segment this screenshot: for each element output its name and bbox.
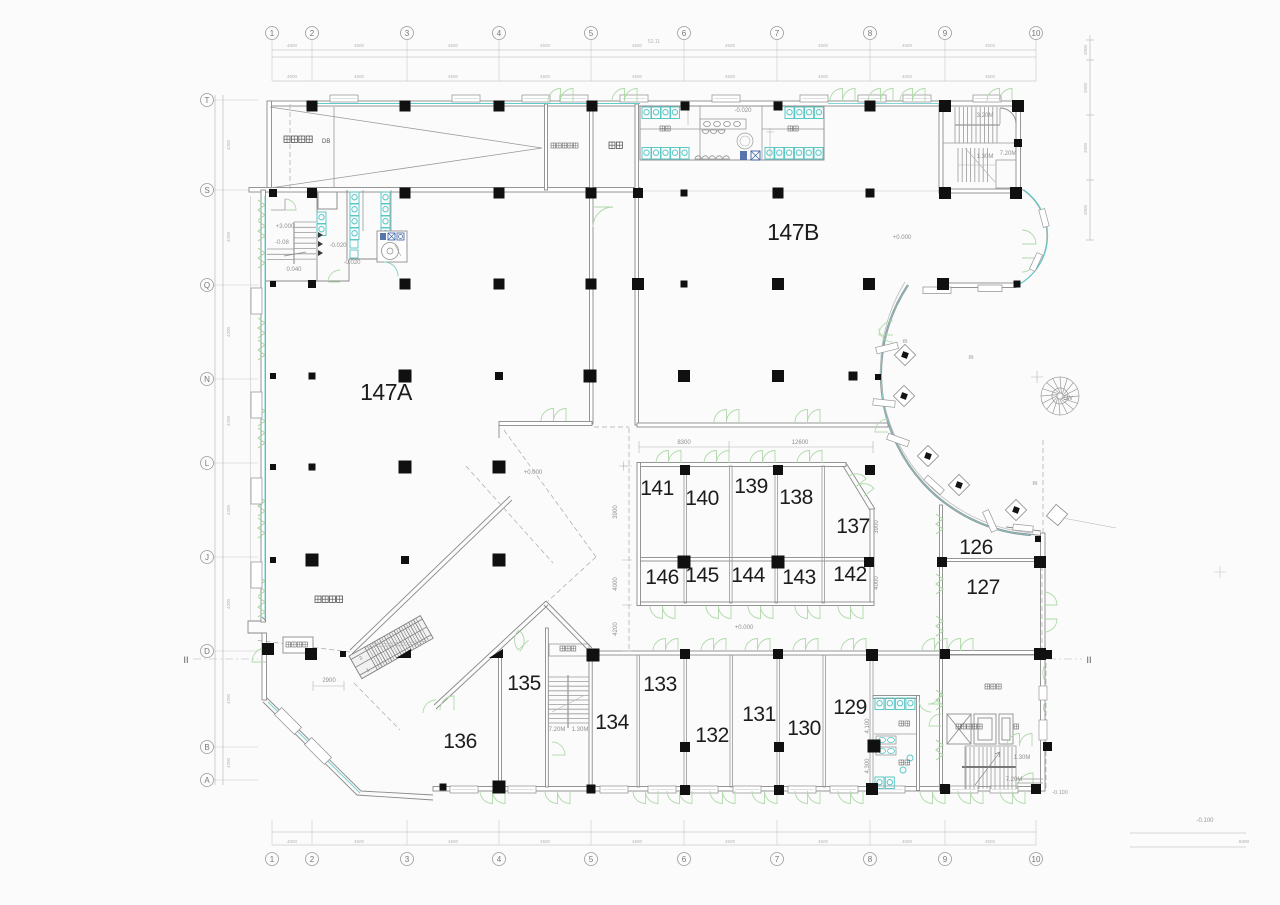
svg-text:12600: 12600: [792, 440, 809, 446]
svg-text:N: N: [204, 375, 210, 384]
svg-text:4200: 4200: [226, 504, 231, 515]
svg-text:3900: 3900: [1083, 44, 1088, 55]
svg-text:4500: 4500: [818, 43, 829, 48]
svg-text:+0.000: +0.000: [735, 625, 754, 631]
svg-text:143: 143: [782, 566, 816, 589]
svg-text:140: 140: [685, 487, 719, 510]
svg-text:147B: 147B: [767, 219, 819, 245]
svg-text:3.20M: 3.20M: [977, 113, 994, 119]
svg-text:4200: 4200: [226, 326, 231, 337]
svg-text:7.20M: 7.20M: [1006, 777, 1023, 783]
svg-text:4200: 4200: [226, 139, 231, 150]
svg-text:2: 2: [310, 855, 315, 864]
svg-text:146: 146: [645, 566, 679, 589]
svg-text:4200: 4200: [613, 622, 619, 636]
svg-text:-0.100: -0.100: [1196, 818, 1214, 824]
svg-text:4500: 4500: [448, 839, 459, 844]
svg-text:4500: 4500: [632, 43, 643, 48]
svg-text:4500: 4500: [985, 839, 996, 844]
svg-text:4500: 4500: [818, 74, 829, 79]
svg-text:4200: 4200: [226, 757, 231, 768]
svg-text:4200: 4200: [226, 693, 231, 704]
svg-text:4: 4: [497, 855, 502, 864]
svg-text:5W: 5W: [1064, 396, 1073, 402]
svg-text:4500: 4500: [902, 74, 913, 79]
svg-text:3: 3: [405, 29, 410, 38]
svg-text:+0.000: +0.000: [524, 470, 543, 476]
svg-text:4500: 4500: [725, 74, 736, 79]
svg-text:+0.000: +0.000: [893, 235, 912, 241]
svg-text:131: 131: [742, 703, 776, 726]
svg-text:138: 138: [779, 486, 813, 509]
svg-text:m: m: [969, 355, 974, 361]
svg-text:52.11: 52.11: [648, 39, 660, 45]
svg-text:4200: 4200: [226, 598, 231, 609]
svg-text:129: 129: [833, 696, 867, 719]
svg-text:10: 10: [1032, 855, 1041, 864]
svg-text:II: II: [1086, 655, 1091, 665]
svg-text:J: J: [205, 553, 209, 562]
svg-text:4000: 4000: [613, 577, 619, 591]
svg-text:6: 6: [682, 29, 687, 38]
svg-text:4500: 4500: [818, 839, 829, 844]
svg-text:4500: 4500: [354, 839, 365, 844]
svg-text:141: 141: [640, 477, 674, 500]
svg-text:4500: 4500: [287, 74, 298, 79]
svg-text:6: 6: [682, 855, 687, 864]
svg-text:-0.08: -0.08: [275, 240, 289, 246]
svg-text:4000: 4000: [874, 576, 880, 590]
svg-text:134: 134: [595, 711, 629, 734]
svg-text:4500: 4500: [902, 839, 913, 844]
svg-text:3900: 3900: [1083, 204, 1088, 215]
svg-text:4500: 4500: [287, 839, 298, 844]
svg-text:T: T: [205, 96, 210, 105]
svg-text:-0.020: -0.020: [343, 260, 361, 266]
svg-text:127: 127: [966, 576, 1000, 599]
svg-text:S: S: [204, 186, 209, 195]
svg-text:7: 7: [775, 29, 780, 38]
svg-text:2: 2: [310, 29, 315, 38]
svg-text:8300: 8300: [677, 440, 691, 446]
svg-text:9: 9: [943, 855, 948, 864]
svg-text:4.100: 4.100: [865, 718, 871, 734]
svg-text:3900: 3900: [1083, 142, 1088, 153]
svg-text:4.300: 4.300: [865, 758, 871, 774]
svg-text:-0.020: -0.020: [329, 243, 347, 249]
svg-text:147A: 147A: [360, 379, 413, 405]
svg-text:10: 10: [1032, 29, 1041, 38]
svg-text:DB: DB: [322, 139, 330, 145]
svg-text:133: 133: [643, 673, 677, 696]
svg-text:+3.000: +3.000: [276, 224, 295, 230]
svg-text:3900: 3900: [1083, 82, 1088, 93]
svg-text:4500: 4500: [354, 43, 365, 48]
svg-text:4500: 4500: [540, 839, 551, 844]
svg-text:4500: 4500: [287, 43, 298, 48]
svg-text:144: 144: [731, 564, 765, 587]
svg-text:m: m: [1033, 481, 1038, 487]
svg-text:0.040: 0.040: [286, 267, 302, 273]
svg-text:4500: 4500: [632, 74, 643, 79]
svg-text:7.20M: 7.20M: [549, 727, 566, 733]
svg-text:9: 9: [943, 29, 948, 38]
svg-text:4500: 4500: [985, 43, 996, 48]
svg-text:2900: 2900: [322, 678, 336, 684]
svg-text:4500: 4500: [725, 839, 736, 844]
svg-text:7: 7: [775, 855, 780, 864]
svg-text:-0.020: -0.020: [734, 108, 752, 114]
svg-text:1.30M: 1.30M: [1014, 755, 1031, 761]
svg-text:B: B: [204, 743, 209, 752]
svg-text:8400: 8400: [1239, 839, 1250, 844]
svg-text:3: 3: [405, 855, 410, 864]
svg-text:Q: Q: [204, 281, 210, 290]
svg-text:3900: 3900: [613, 505, 619, 519]
svg-text:4500: 4500: [725, 43, 736, 48]
svg-text:D: D: [204, 647, 210, 656]
svg-text:4200: 4200: [226, 415, 231, 426]
svg-text:4500: 4500: [354, 74, 365, 79]
svg-text:1.30M: 1.30M: [572, 727, 589, 733]
svg-text:4500: 4500: [902, 43, 913, 48]
svg-text:126: 126: [959, 536, 993, 559]
svg-text:132: 132: [695, 724, 729, 747]
svg-text:A: A: [204, 776, 210, 785]
svg-text:4500: 4500: [540, 74, 551, 79]
svg-text:3900: 3900: [874, 520, 880, 534]
svg-text:4200: 4200: [226, 231, 231, 242]
svg-text:4500: 4500: [632, 839, 643, 844]
svg-text:8: 8: [868, 29, 873, 38]
svg-text:4: 4: [497, 29, 502, 38]
svg-text:II: II: [183, 655, 188, 665]
svg-text:4500: 4500: [985, 74, 996, 79]
svg-text:7.20M: 7.20M: [1000, 151, 1017, 157]
svg-text:135: 135: [507, 672, 541, 695]
svg-text:142: 142: [833, 563, 867, 586]
svg-text:4500: 4500: [448, 43, 459, 48]
svg-text:L: L: [205, 459, 210, 468]
svg-text:1: 1: [270, 29, 275, 38]
svg-text:139: 139: [734, 475, 768, 498]
svg-text:136: 136: [443, 730, 477, 753]
svg-text:1.30M: 1.30M: [977, 154, 994, 160]
svg-text:137: 137: [836, 515, 870, 538]
svg-text:-0.100: -0.100: [1052, 790, 1068, 796]
svg-text:8: 8: [868, 855, 873, 864]
svg-text:1: 1: [270, 855, 275, 864]
svg-text:5: 5: [589, 29, 594, 38]
svg-text:130: 130: [787, 717, 821, 740]
svg-text:4500: 4500: [448, 74, 459, 79]
svg-text:4500: 4500: [540, 43, 551, 48]
svg-text:5: 5: [589, 855, 594, 864]
